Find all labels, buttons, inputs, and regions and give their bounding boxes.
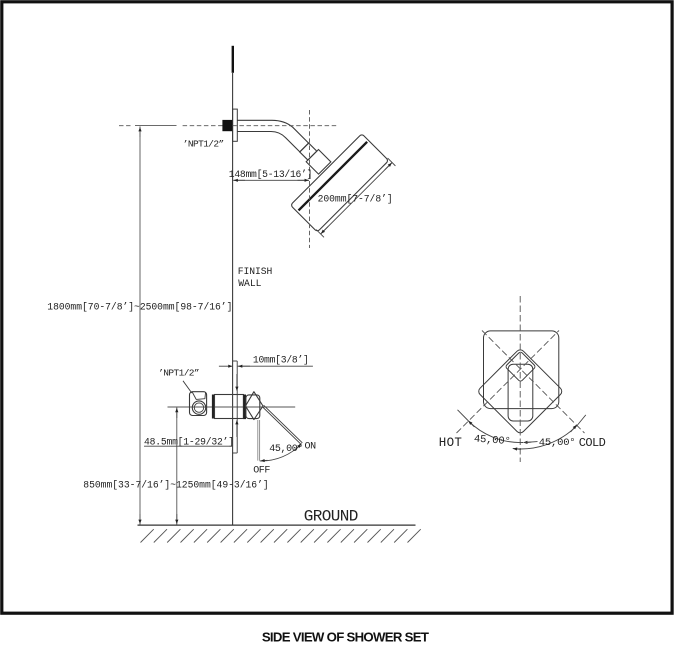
svg-text:FINISH: FINISH xyxy=(238,266,273,277)
svg-text:45,00°: 45,00° xyxy=(269,443,303,455)
svg-text:HOT: HOT xyxy=(439,436,463,450)
svg-text:’NPT1/2”: ’NPT1/2” xyxy=(183,138,224,149)
svg-text:OFF: OFF xyxy=(253,466,270,477)
svg-text:10mm[3/8’]: 10mm[3/8’] xyxy=(253,354,309,365)
svg-text:1800mm[70-7/8’]~2500mm[98-7/16: 1800mm[70-7/8’]~2500mm[98-7/16’] xyxy=(47,302,232,313)
svg-text:850mm[33-7/16’]~1250mm[49-3/16: 850mm[33-7/16’]~1250mm[49-3/16’] xyxy=(83,480,268,491)
svg-text:45,00°: 45,00° xyxy=(539,437,576,449)
svg-text:SIDE VIEW OF SHOWER SET: SIDE VIEW OF SHOWER SET xyxy=(262,629,429,644)
svg-text:148mm[5-13/16’]: 148mm[5-13/16’] xyxy=(229,169,312,180)
svg-text:GROUND: GROUND xyxy=(304,507,358,525)
svg-text:’NPT1/2”: ’NPT1/2” xyxy=(158,367,199,378)
svg-text:45,00°: 45,00° xyxy=(474,434,511,449)
svg-text:WALL: WALL xyxy=(238,278,261,289)
svg-text:ON: ON xyxy=(305,442,317,453)
svg-text:48.5mm[1-29/32’]: 48.5mm[1-29/32’] xyxy=(144,436,234,447)
svg-text:200mm[7-7/8’]: 200mm[7-7/8’] xyxy=(318,193,393,204)
svg-text:COLD: COLD xyxy=(579,436,606,450)
